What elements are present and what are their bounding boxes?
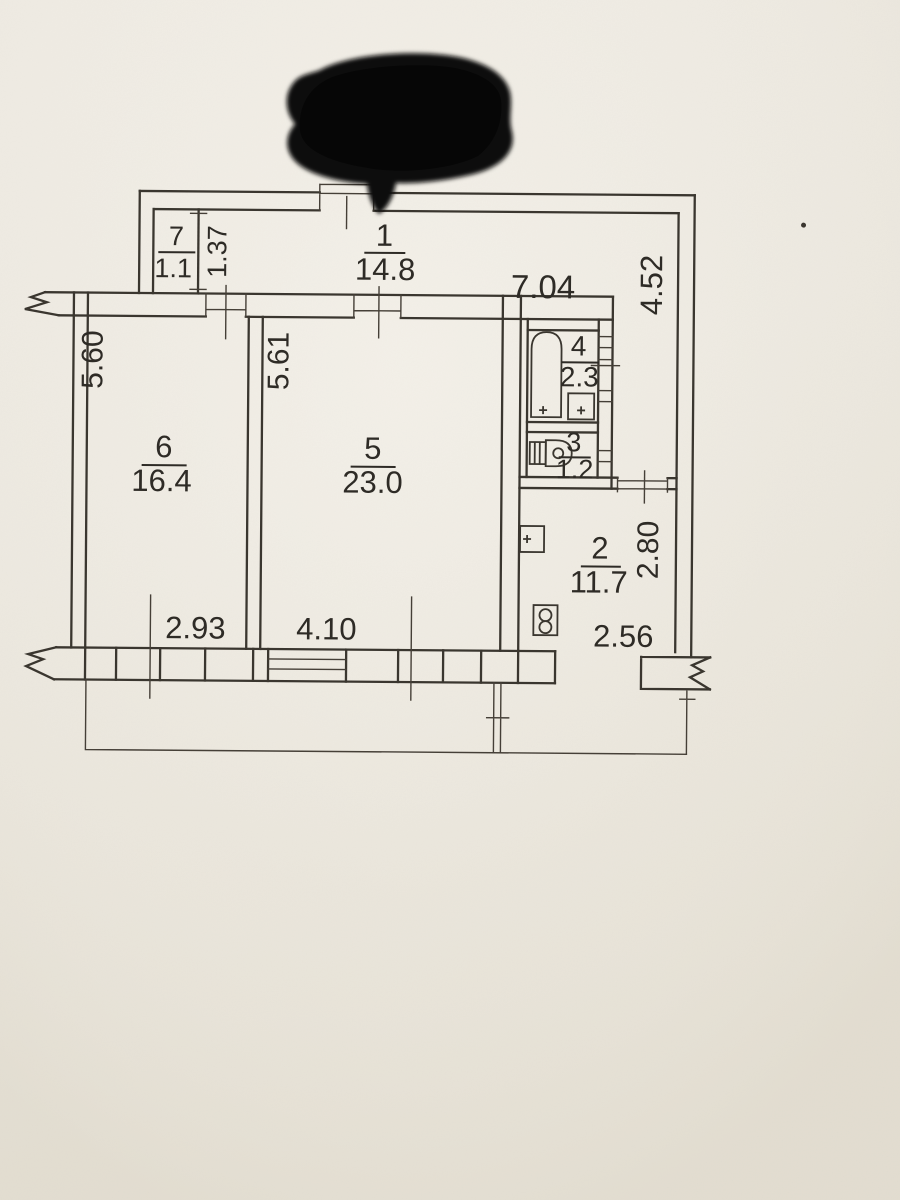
ink-speck	[801, 223, 806, 228]
dim-kitchen-width: 2.56	[593, 619, 654, 654]
room-bedroom-number: 6	[155, 429, 173, 464]
dim-hall-width: 7.04	[511, 268, 576, 306]
room-kitchen-number: 2	[591, 531, 609, 566]
room-living-area: 23.0	[342, 465, 403, 500]
room-wc-number: 3	[566, 427, 581, 457]
room-wc-area: 1.2	[556, 454, 594, 484]
dim-closet-depth: 1.37	[202, 225, 232, 278]
room-closet-area: 1.1	[154, 253, 192, 283]
paper-background	[0, 0, 900, 1200]
room-hall-area: 14.8	[355, 252, 416, 287]
dim-bedroom-length: 5.60	[76, 330, 109, 389]
dim-hall-depth: 4.52	[634, 255, 669, 316]
room-bath-area: 2.3	[560, 361, 599, 392]
room-bath-number: 4	[571, 330, 587, 361]
room-kitchen-area: 11.7	[570, 564, 628, 599]
dim-kitchen-depth: 2.80	[632, 521, 665, 580]
dim-bedroom-width: 2.93	[165, 610, 226, 645]
dim-living-width: 4.10	[296, 611, 357, 646]
room-hall-number: 1	[376, 218, 394, 253]
floor-plan-canvas: 1 14.8 7 1.1 6 16.4 5 23.0 4 2.3 3 1.2 2	[0, 0, 900, 1200]
room-bedroom-area: 16.4	[131, 463, 192, 498]
photo-of-floor-plan: 1 14.8 7 1.1 6 16.4 5 23.0 4 2.3 3 1.2 2	[0, 0, 900, 1200]
room-living-number: 5	[364, 431, 382, 466]
room-closet-number: 7	[169, 221, 184, 251]
dim-living-length: 5.61	[262, 332, 295, 391]
